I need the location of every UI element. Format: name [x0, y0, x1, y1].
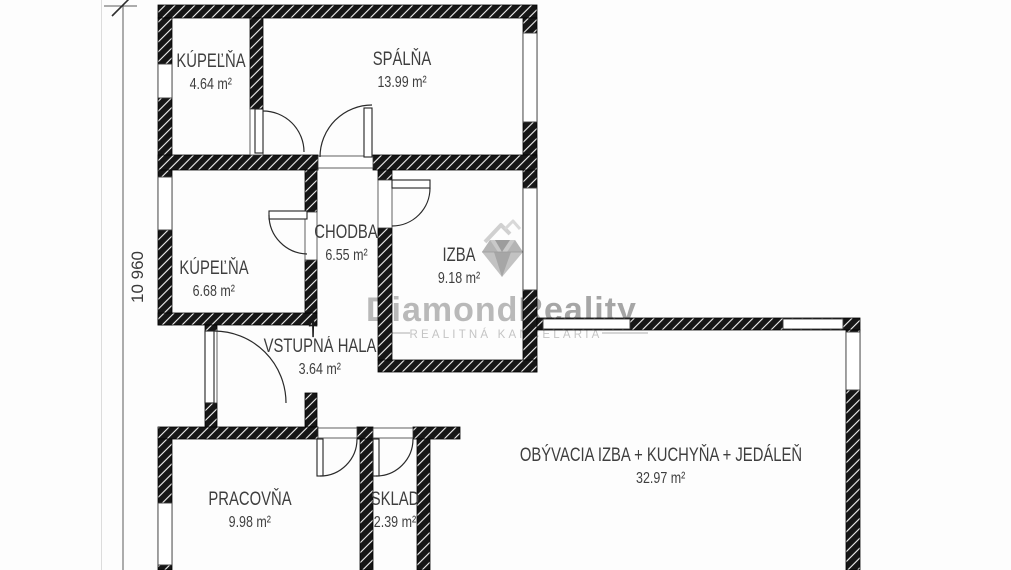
floor-plan-drawing: DiamondReality REALITNÁ KANCELÁRIA 10 96… — [0, 0, 1011, 570]
door-sill — [318, 428, 357, 438]
wall — [158, 427, 318, 439]
wall — [305, 170, 317, 212]
wall — [373, 155, 537, 170]
wall — [305, 260, 317, 313]
window — [543, 319, 630, 329]
door-arc — [269, 215, 307, 254]
door-leaf — [364, 108, 372, 157]
door-leaf — [392, 180, 430, 188]
window — [158, 177, 172, 230]
window — [846, 332, 860, 390]
window — [158, 64, 172, 98]
door-leaf — [255, 109, 263, 153]
dimension-tick-slash — [112, 0, 131, 16]
wall — [158, 155, 318, 170]
wall — [357, 427, 373, 439]
window — [523, 33, 537, 122]
door-leaf — [317, 439, 323, 476]
wall — [378, 360, 537, 372]
wall — [158, 5, 537, 18]
dimension-annotation: 10 960 — [102, 0, 148, 570]
walls — [158, 5, 860, 570]
door-leaf — [205, 331, 214, 403]
door-arc — [376, 439, 413, 476]
door-leaf — [269, 211, 307, 219]
door-leaf — [373, 439, 379, 476]
dimension-value: 10 960 — [128, 251, 147, 303]
wall — [158, 313, 317, 325]
window — [523, 188, 537, 290]
wall — [305, 393, 317, 427]
entrance-cross-icon: † — [307, 320, 318, 340]
door-arc — [214, 331, 286, 403]
wall — [413, 427, 460, 439]
door-arc — [392, 188, 430, 226]
window — [783, 319, 843, 329]
wall — [378, 170, 392, 180]
diamond-logo-icon — [482, 221, 523, 277]
door-arc — [320, 439, 357, 476]
floor-plan-page: DiamondReality REALITNÁ KANCELÁRIA 10 96… — [0, 0, 1011, 570]
wall — [360, 439, 373, 570]
wall — [417, 439, 430, 570]
door-sill — [318, 156, 373, 168]
door-arc — [263, 111, 304, 152]
door-sill — [373, 428, 413, 438]
wall — [378, 228, 392, 360]
door-sill — [378, 180, 392, 228]
wall — [250, 18, 263, 109]
wall — [205, 325, 217, 331]
window — [158, 503, 172, 565]
